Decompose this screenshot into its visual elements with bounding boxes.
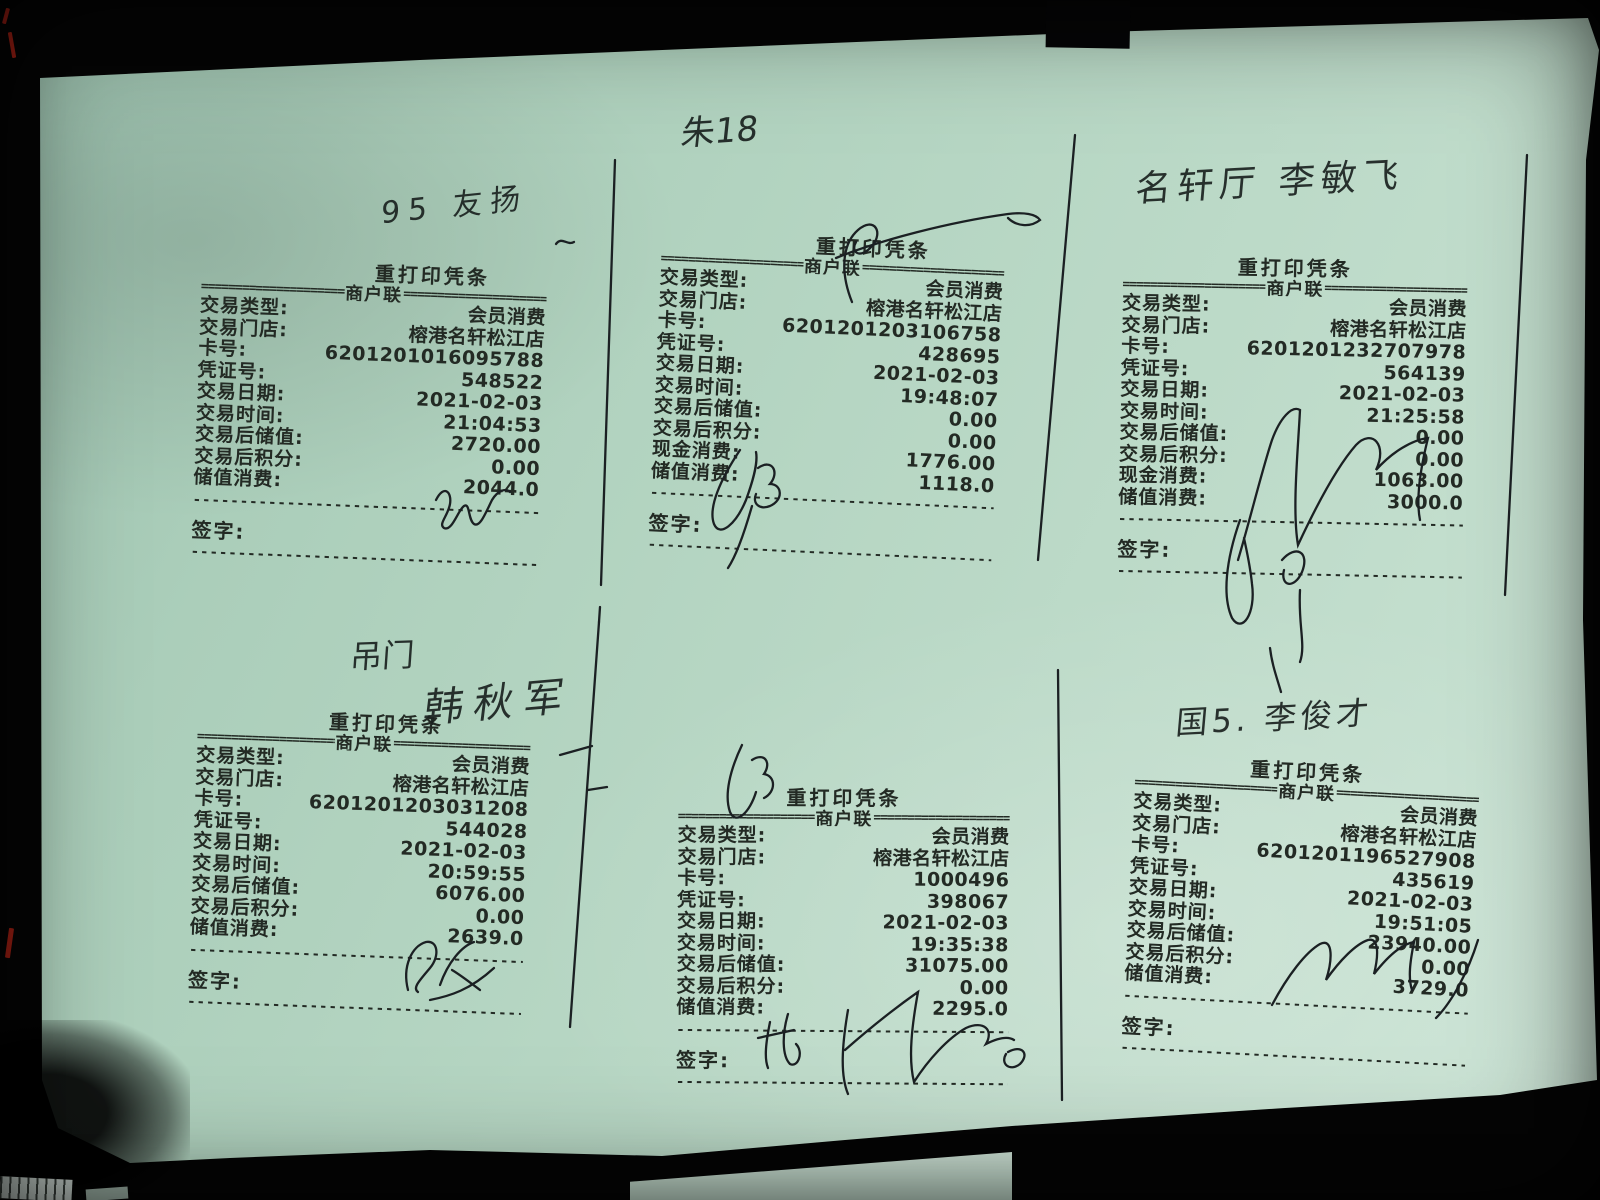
receipt-field-label: 储值消费: [1118, 486, 1207, 509]
receipt-field-label: 储值消费: [193, 467, 282, 492]
receipt-field-value: 2044.0 [463, 477, 540, 501]
receipt-field-label: 交易时间: [1120, 400, 1209, 423]
receipt-field-value: 3729.0 [1392, 977, 1469, 1002]
equals-rule: ========================================… [678, 809, 815, 825]
receipt-rows: 交易类型:会员消费交易门店:榕港名轩松江店卡号:6201201203031208… [189, 745, 530, 951]
receipt-rows: 交易类型:会员消费交易门店:榕港名轩松江店卡号:6201201203106758… [650, 267, 1003, 497]
bottom-left-shadow [0, 1020, 190, 1190]
receipt-bottom-right: 重打印凭条 ==================================… [1120, 752, 1480, 1071]
copy-label: 商户联 [815, 808, 872, 827]
receipt-field-label: 储值消费: [189, 917, 278, 942]
handwritten-note-bottom-left-room: 吊门 [349, 630, 416, 678]
receipt-row: 交易门店:榕港名轩松江店 [677, 846, 1009, 870]
receipt-field-value: 2021-02-03 [1339, 383, 1466, 407]
receipt-field-label: 交易后储值: [1119, 422, 1228, 446]
receipt-field-value: 21:25:58 [1366, 405, 1465, 428]
receipt-rows: 交易类型:会员消费交易门店:榕港名轩松江店卡号:1000496凭证号:39806… [676, 825, 1009, 1021]
receipt-field-label: 凭证号: [677, 889, 746, 911]
receipt-field-label: 卡号: [194, 788, 243, 811]
receipt-field-value: 会员消费 [932, 827, 1010, 849]
receipt-field-label: 交易类型: [1122, 293, 1211, 316]
paper-sliver-bottom-center [630, 1152, 1012, 1200]
receipt-field-value: 2021-02-03 [882, 912, 1009, 934]
receipt-top-middle: 重打印凭条 ==================================… [647, 228, 1005, 566]
dash-rule: ----------------------------------------… [676, 1073, 1008, 1089]
receipt-field-value: 19:35:38 [910, 934, 1009, 956]
receipt-row: 交易后储值:31075.00 [677, 954, 1009, 978]
red-edge-mark [5, 928, 14, 958]
receipt-row: 储值消费:2295.0 [676, 997, 1008, 1021]
receipt-field-label: 卡号: [657, 310, 707, 334]
receipt-field-value: 0.00 [1415, 449, 1464, 471]
receipt-title: 重打印凭条 [678, 786, 1010, 810]
receipt-field-label: 交易日期: [1120, 379, 1209, 402]
receipt-field-value: 6076.00 [435, 883, 526, 908]
dash-rule: ----------------------------------------… [1118, 511, 1463, 532]
receipt-field-value: 会员消费 [1389, 298, 1467, 321]
receipt-field-value: 2021-02-03 [400, 839, 527, 865]
receipt-top-right: 重打印凭条 ==================================… [1117, 254, 1468, 584]
receipt-field-value: 0.00 [948, 409, 998, 433]
receipt-field-label: 凭证号: [1121, 357, 1190, 380]
signature-label: 签字: [1117, 538, 1462, 567]
receipt-field-label: 现金消费: [1119, 465, 1208, 488]
receipt-field-label: 储值消费: [676, 997, 765, 1019]
red-edge-mark [8, 32, 16, 58]
equals-rule: ========================================… [873, 810, 1010, 826]
receipt-field-value: 2639.0 [447, 926, 524, 950]
receipt-rows: 交易类型:会员消费交易门店:榕港名轩松江店卡号:6201201016095788… [193, 295, 546, 502]
paper-sliver-bottom-left-2 [86, 1187, 129, 1200]
receipt-field-label: 交易日期: [677, 911, 766, 933]
receipt-field-label: 储值消费: [650, 460, 739, 485]
receipt-field-label: 交易门店: [677, 846, 766, 868]
receipt-row: 交易日期:2021-02-03 [677, 911, 1009, 935]
receipt-row: 卡号:1000496 [677, 868, 1009, 892]
receipt-field-value: 1118.0 [918, 472, 995, 497]
receipt-field-label: 卡号: [1121, 336, 1170, 358]
receipt-rows: 交易类型:会员消费交易门店:榕港名轩松江店卡号:6201201196527908… [1124, 791, 1479, 1002]
receipt-bottom-middle: 重打印凭条 ==================================… [676, 786, 1010, 1090]
handwritten-note-top-middle: 朱18 [679, 101, 761, 156]
receipt-field-label: 储值消费: [1124, 963, 1214, 989]
signature-label: 签字: [676, 1048, 1008, 1072]
receipt-field-label: 交易类型: [678, 825, 767, 847]
photo-of-receipt-sheet: 重打印凭条 ==================================… [0, 0, 1600, 1200]
receipt-row: 储值消费:3000.0 [1118, 486, 1463, 514]
receipt-top-left: 重打印凭条 ==================================… [190, 256, 547, 571]
receipt-field-label: 交易时间: [677, 932, 766, 954]
receipt-field-label: 交易后储值: [677, 954, 786, 976]
paper-sliver-bottom-left [0, 1176, 73, 1200]
red-edge-mark [2, 8, 10, 24]
equals-rule: ========================================… [1324, 281, 1467, 299]
receipt-row: 交易类型:会员消费 [678, 825, 1010, 849]
black-tab-top-edge [1046, 0, 1131, 49]
receipt-rows: 交易类型:会员消费交易门店:榕港名轩松江店卡号:6201201232707978… [1118, 293, 1467, 515]
green-paper-sheet: 重打印凭条 ==================================… [0, 0, 1600, 1200]
receipt-field-value: 398067 [927, 891, 1009, 913]
receipt-field-value: 榕港名轩松江店 [873, 848, 1010, 870]
receipt-bottom-left: 重打印凭条 ==================================… [187, 706, 532, 1020]
receipt-field-value: 2720.00 [450, 434, 541, 459]
receipt-field-label: 交易后积分: [677, 975, 786, 997]
receipt-field-value: 3000.0 [1387, 492, 1464, 515]
receipt-field-value: 0.00 [960, 977, 1009, 999]
receipt-field-value: 0.00 [1415, 428, 1464, 450]
receipt-field-value: 1000496 [913, 870, 1009, 892]
receipt-field-value: 2295.0 [932, 999, 1008, 1021]
receipt-field-label: 交易门店: [1121, 314, 1210, 337]
receipt-field-value: 31075.00 [905, 956, 1009, 978]
receipt-field-value: 564139 [1383, 363, 1466, 386]
receipt-field-value: 1063.00 [1373, 470, 1463, 493]
receipt-field-label: 卡号: [198, 338, 247, 361]
receipt-field-value: 6201201232707978 [1246, 338, 1466, 364]
receipt-field-label: 卡号: [677, 868, 726, 890]
dash-rule: ----------------------------------------… [676, 1021, 1008, 1037]
